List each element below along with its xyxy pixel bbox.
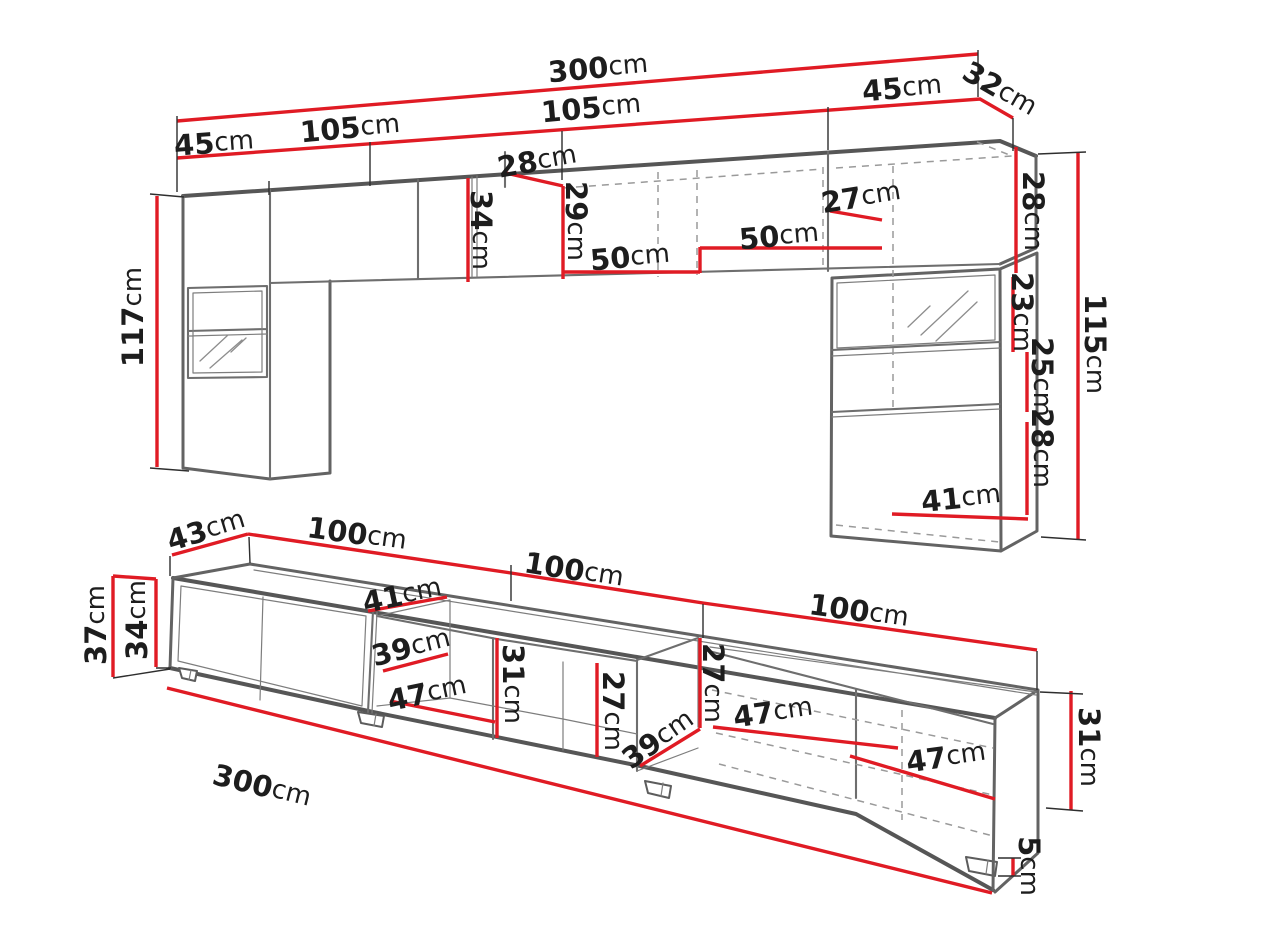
dim-bottom-top-inner-depth: 41cm (359, 570, 444, 620)
lower-unit-dimension-labels: 43cm 100cm 100cm 100cm 41cm 37cm 34cm 31… (79, 502, 1106, 896)
dim-bottom-width-middle: 100cm (522, 545, 626, 594)
upper-unit-dimension-lines (157, 54, 1078, 540)
dim-top-right-column-height: 115cm (1078, 294, 1112, 394)
upper-unit-detail-lines (188, 176, 1000, 417)
dim-top-center-height: 34cm (464, 190, 498, 270)
dim-bottom-open-left-height: 31cm (496, 644, 530, 724)
dim-bottom-right-end-height: 31cm (1072, 707, 1106, 787)
upper-wall-unit (150, 50, 1086, 551)
dim-top-shelf-width-right: 50cm (738, 216, 821, 257)
dim-bottom-compartment-width-right: 47cm (904, 735, 988, 780)
dim-top-right-top-height: 28cm (1016, 171, 1050, 251)
dim-bottom-overall-width: 300cm (209, 757, 314, 814)
dim-bottom-width-right: 100cm (807, 587, 911, 635)
dim-bottom-open-middle-height: 27cm (596, 671, 630, 751)
dim-top-right-section-width: 105cm (540, 87, 643, 130)
dim-top-open-shelf-height: 25cm (1025, 337, 1059, 417)
dim-top-right-inner-width: 41cm (919, 477, 1002, 519)
upper-unit-extension-ticks (150, 50, 1086, 540)
dim-bottom-open-left-width: 47cm (384, 668, 469, 718)
dim-top-center-inner-height: 29cm (559, 181, 593, 261)
dim-bottom-depth: 43cm (163, 502, 249, 558)
dim-bottom-width-left: 100cm (305, 510, 409, 558)
furniture-dimension-diagram: 300cm 105cm 45cm 105cm 45cm 32cm 28cm 34… (0, 0, 1262, 946)
dim-bottom-leg-height: 5cm (1012, 836, 1046, 896)
dim-top-lower-door-height: 28cm (1025, 408, 1059, 488)
dim-bottom-total-height: 37cm (79, 585, 113, 665)
glass-pane-marks (200, 291, 977, 368)
dim-top-left-column-width: 45cm (173, 123, 255, 162)
dim-top-center-depth: 28cm (495, 137, 580, 184)
upper-unit-dimension-labels: 300cm 105cm 45cm 105cm 45cm 32cm 28cm 34… (116, 47, 1112, 519)
upper-unit-outline (183, 156, 1037, 551)
dim-bottom-body-height: 34cm (120, 580, 154, 660)
dim-bottom-open-right-height: 27cm (696, 643, 730, 723)
dim-top-corner-depth: 32cm (957, 54, 1043, 123)
dim-top-left-column-height: 117cm (116, 267, 150, 367)
dim-top-right-cabinet-depth: 27cm (819, 174, 903, 220)
